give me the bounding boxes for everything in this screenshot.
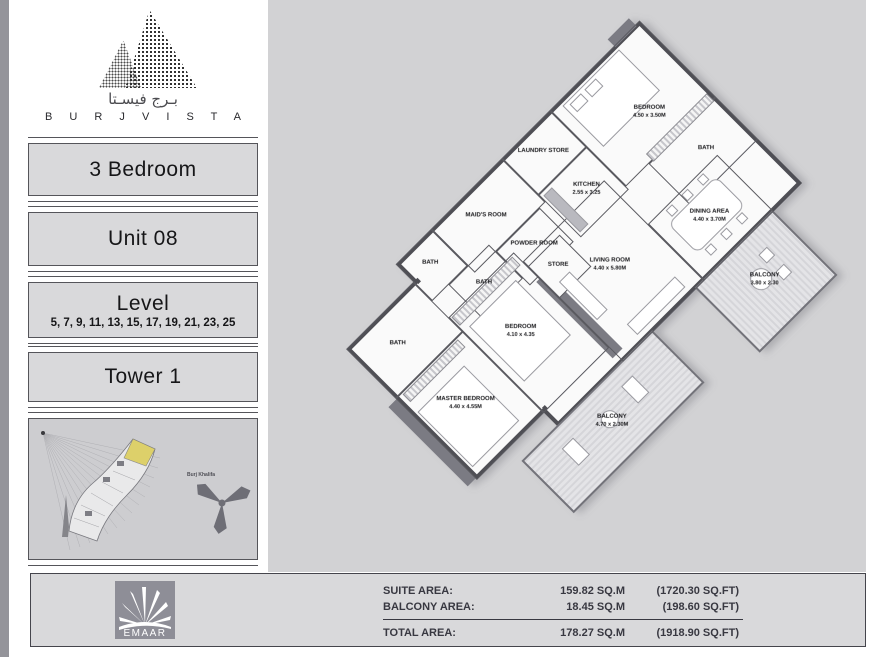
label-laundry: LAUNDRY STORE	[518, 148, 569, 156]
label-bedroom-2: BEDROOM4.50 x 3.50M	[633, 105, 666, 120]
brand-name: B U R J V I S T A	[28, 111, 258, 123]
bedroom-count-label: 3 Bedroom	[29, 158, 257, 182]
label-balcony-master: BALCONY4.70 x 2.30M	[596, 414, 629, 429]
burj-vista-logo: بـرج فيسـتا B U R J V I S T A	[28, 6, 258, 128]
label-bath-maids: BATH	[422, 260, 438, 268]
total-area-row: TOTAL AREA:178.27 SQ.M(1918.90 SQ.FT)	[383, 625, 743, 641]
tower-label: Tower 1	[29, 365, 257, 389]
tower-silhouette	[62, 495, 69, 537]
page-edge-band	[0, 0, 9, 657]
floor-plan: BATH MAID'S ROOM LAUNDRY STORE KITCHEN2.…	[328, 20, 851, 543]
panel-levels: Level 5, 7, 9, 11, 13, 15, 17, 19, 21, 2…	[28, 282, 258, 338]
sidebar: بـرج فيسـتا B U R J V I S T A 3 Bedroom …	[28, 6, 258, 560]
key-plan: Burj Khalifa	[28, 418, 258, 560]
label-kitchen: KITCHEN2.55 x 3.25	[572, 182, 600, 197]
floor-plan-area: BATH MAID'S ROOM LAUNDRY STORE KITCHEN2.…	[268, 0, 866, 572]
panel-bedroom-count: 3 Bedroom	[28, 143, 258, 196]
footer-bar: EMAAR SUITE AREA:159.82 SQ.M(1720.30 SQ.…	[30, 573, 866, 647]
label-balcony-living: BALCONY3.80 x 2.30	[750, 272, 780, 287]
balcony-area-row: BALCONY AREA:18.45 SQ.M(198.60 SQ.FT)	[383, 599, 743, 615]
label-living: LIVING ROOM4.40 x 5.80M	[590, 257, 630, 272]
label-powder: POWDER ROOM	[510, 241, 557, 249]
label-bath-2: BATH	[698, 145, 714, 153]
landmark-label: Burj Khalifa	[187, 472, 215, 478]
view-origin-dot	[41, 431, 45, 435]
label-master-bedroom: MASTER BEDROOM4.40 x 4.55M	[436, 396, 494, 411]
label-maids: MAID'S ROOM	[466, 212, 507, 220]
emaar-logo: EMAAR	[115, 581, 175, 639]
label-bath-master: BATH	[390, 340, 406, 348]
tower-halftone-icon	[83, 10, 203, 88]
brochure-page: بـرج فيسـتا B U R J V I S T A 3 Bedroom …	[0, 0, 879, 657]
level-title: Level	[29, 292, 257, 316]
label-bedroom-3: BEDROOM4.10 x 4.35	[505, 324, 536, 339]
label-bath-3: BATH	[476, 280, 492, 288]
panel-unit-number: Unit 08	[28, 212, 258, 266]
label-store: STORE	[548, 262, 569, 270]
brand-arabic: بـرج فيسـتا	[28, 90, 258, 108]
suite-area-row: SUITE AREA:159.82 SQ.M(1720.30 SQ.FT)	[383, 583, 743, 599]
key-plan-map: Burj Khalifa	[29, 419, 257, 559]
emaar-logo-text: EMAAR	[123, 628, 166, 639]
panel-tower: Tower 1	[28, 352, 258, 402]
unit-number-label: Unit 08	[29, 227, 257, 251]
label-dining: DINING AREA4.40 x 3.70M	[690, 209, 729, 224]
level-numbers: 5, 7, 9, 11, 13, 15, 17, 19, 21, 23, 25	[29, 317, 257, 329]
area-summary: SUITE AREA:159.82 SQ.M(1720.30 SQ.FT) BA…	[383, 583, 743, 641]
total-divider	[383, 619, 743, 620]
